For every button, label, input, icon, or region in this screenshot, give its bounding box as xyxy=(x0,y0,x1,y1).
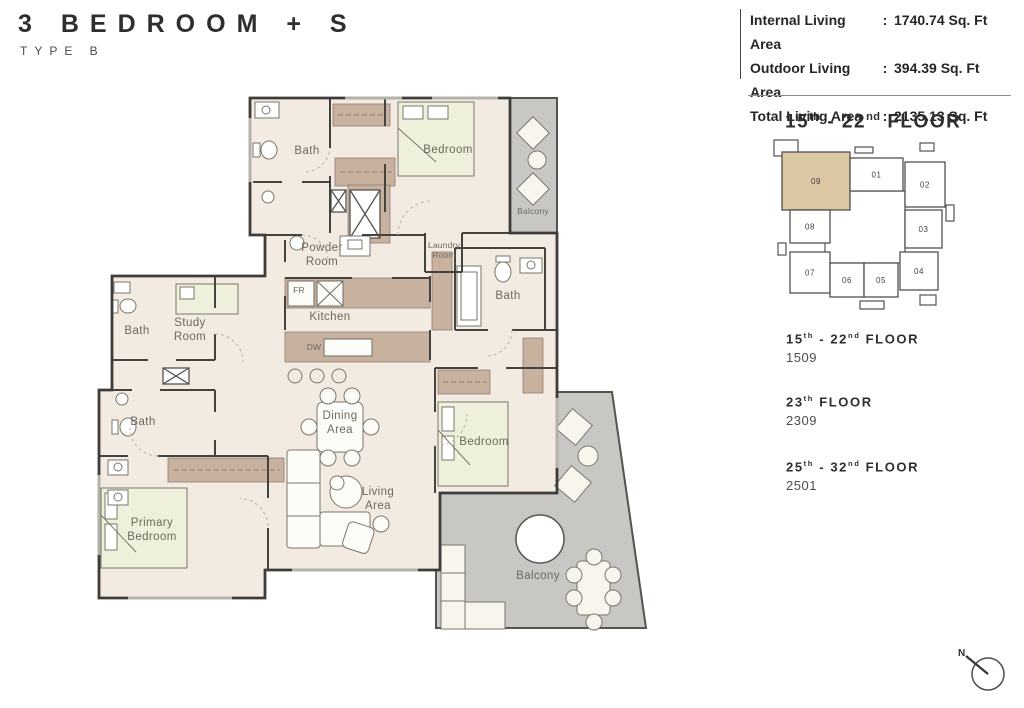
keyplan-title-part: - 22 xyxy=(821,111,867,132)
floor-entry: 25th - 32nd FLOOR 2501 xyxy=(786,459,1006,493)
page: 3 BEDROOM + S TYPE B Internal Living Are… xyxy=(0,0,1024,708)
compass: N xyxy=(952,644,1016,700)
floor-entry: 23th FLOOR 2309 xyxy=(786,394,1006,428)
keyplan-unit-label: 09 xyxy=(811,177,821,186)
floor-entry-unit: 2501 xyxy=(786,478,1006,493)
keyplan-unit-label: 08 xyxy=(805,223,815,232)
floor-entry-unit: 2309 xyxy=(786,413,1006,428)
keyplan-unit-label: 04 xyxy=(914,267,924,276)
keyplan: 090102080307060504 xyxy=(770,135,970,315)
floor-entry: 15th - 22nd FLOOR 1509 xyxy=(786,331,1006,365)
keyplan-unit-label: 02 xyxy=(920,181,930,190)
keyplan-title-sup: th xyxy=(809,111,820,123)
keyplan-unit-label: 05 xyxy=(876,276,886,285)
keyplan-title-part: 15 xyxy=(785,111,809,132)
floor-entry-label: 25th - 32nd FLOOR xyxy=(786,459,1006,474)
keyplan-title: 15th - 22nd FLOOR xyxy=(785,111,961,133)
keyplan-unit-label: 01 xyxy=(872,171,882,180)
keyplan-title-part: FLOOR xyxy=(881,111,962,132)
floor-entry-label: 23th FLOOR xyxy=(786,394,1006,409)
keyplan-unit-label: 03 xyxy=(919,225,929,234)
keyplan-title-sup: nd xyxy=(866,111,880,123)
compass-north-label: N xyxy=(958,648,965,659)
floor-entry-label: 15th - 22nd FLOOR xyxy=(786,331,1006,346)
keyplan-unit-label: 06 xyxy=(842,276,852,285)
floor-entry-unit: 1509 xyxy=(786,350,1006,365)
keyplan-unit-label: 07 xyxy=(805,269,815,278)
